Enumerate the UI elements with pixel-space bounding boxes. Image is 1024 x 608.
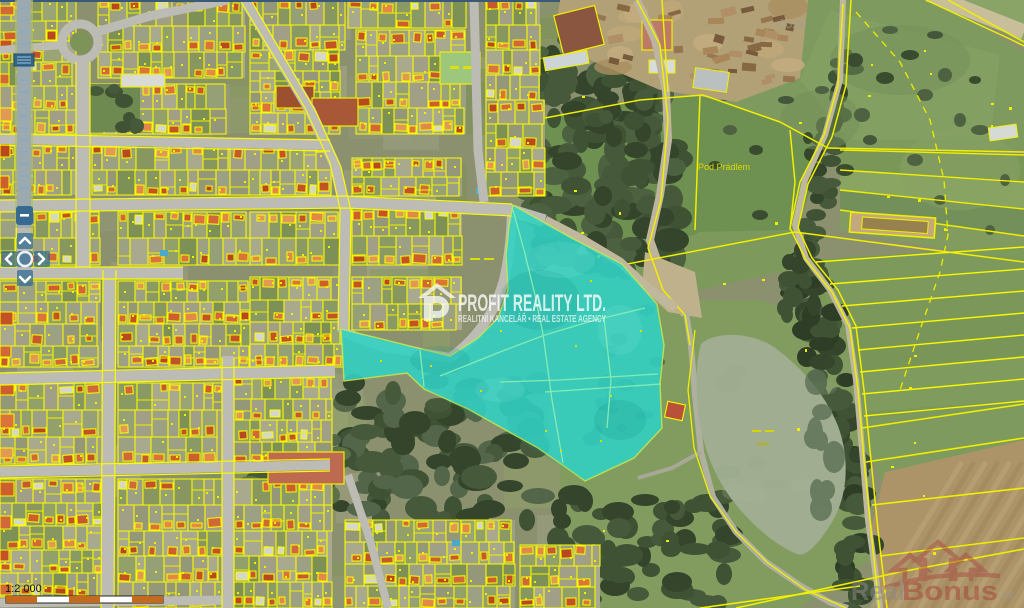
svg-text:1:2 000: 1:2 000 [5,583,42,595]
svg-text:Real: Real [851,578,905,606]
svg-text:ČÚZK: ČÚZK [778,18,806,31]
svg-text:REALITNÍ KANCELÁŘ • REAL ESTAT: REALITNÍ KANCELÁŘ • REAL ESTATE AGENCY [458,312,606,325]
svg-text:Bonus: Bonus [902,578,998,606]
svg-text:Pod Prádlem: Pod Prádlem [698,162,750,172]
svg-text:.cz: .cz [998,587,1014,601]
